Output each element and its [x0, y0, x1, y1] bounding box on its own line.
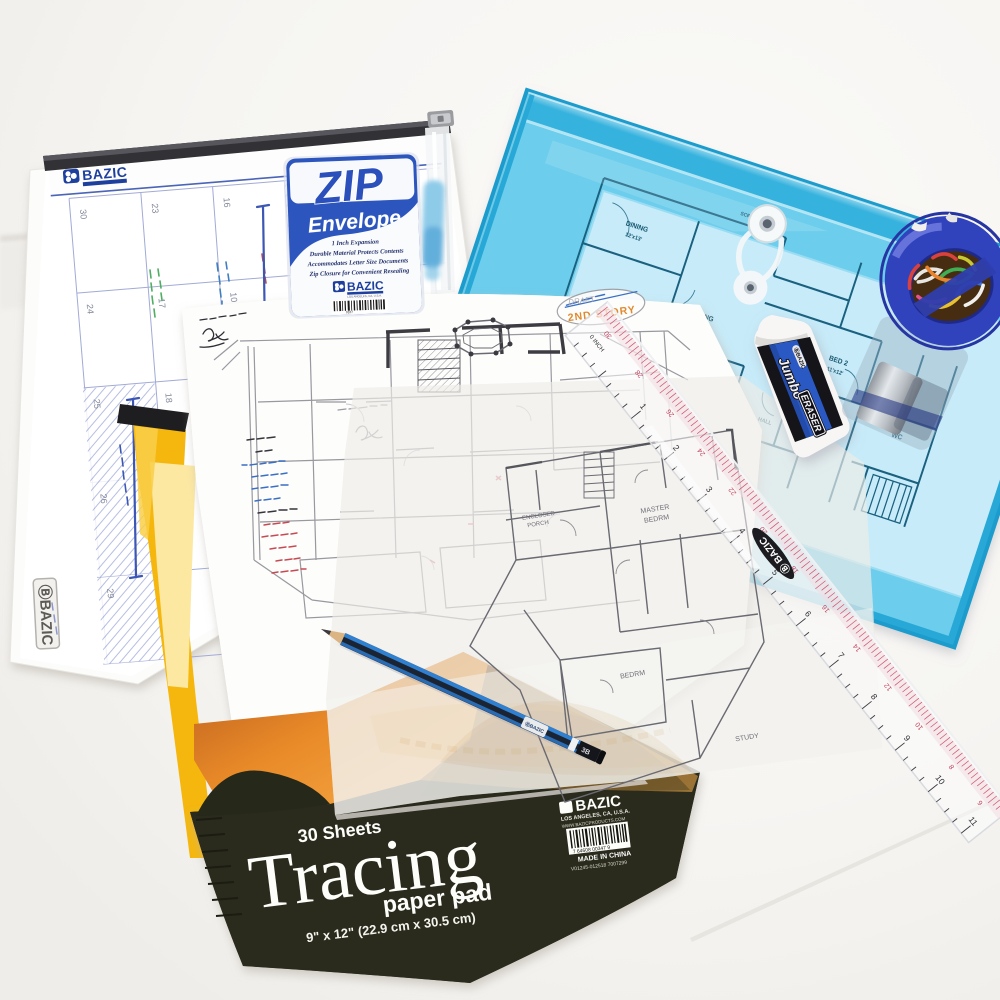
svg-text:10: 10 [228, 292, 239, 303]
svg-text:24: 24 [85, 304, 96, 315]
svg-text:ZIP: ZIP [311, 159, 386, 214]
svg-text:23: 23 [150, 203, 161, 214]
svg-text:16: 16 [222, 197, 233, 208]
svg-text:30: 30 [78, 209, 89, 220]
svg-text:25: 25 [92, 398, 103, 409]
svg-text:18: 18 [163, 393, 174, 404]
svg-text:0167: 0167 [346, 310, 353, 314]
svg-text:29: 29 [105, 588, 116, 599]
svg-text:26: 26 [98, 493, 109, 504]
